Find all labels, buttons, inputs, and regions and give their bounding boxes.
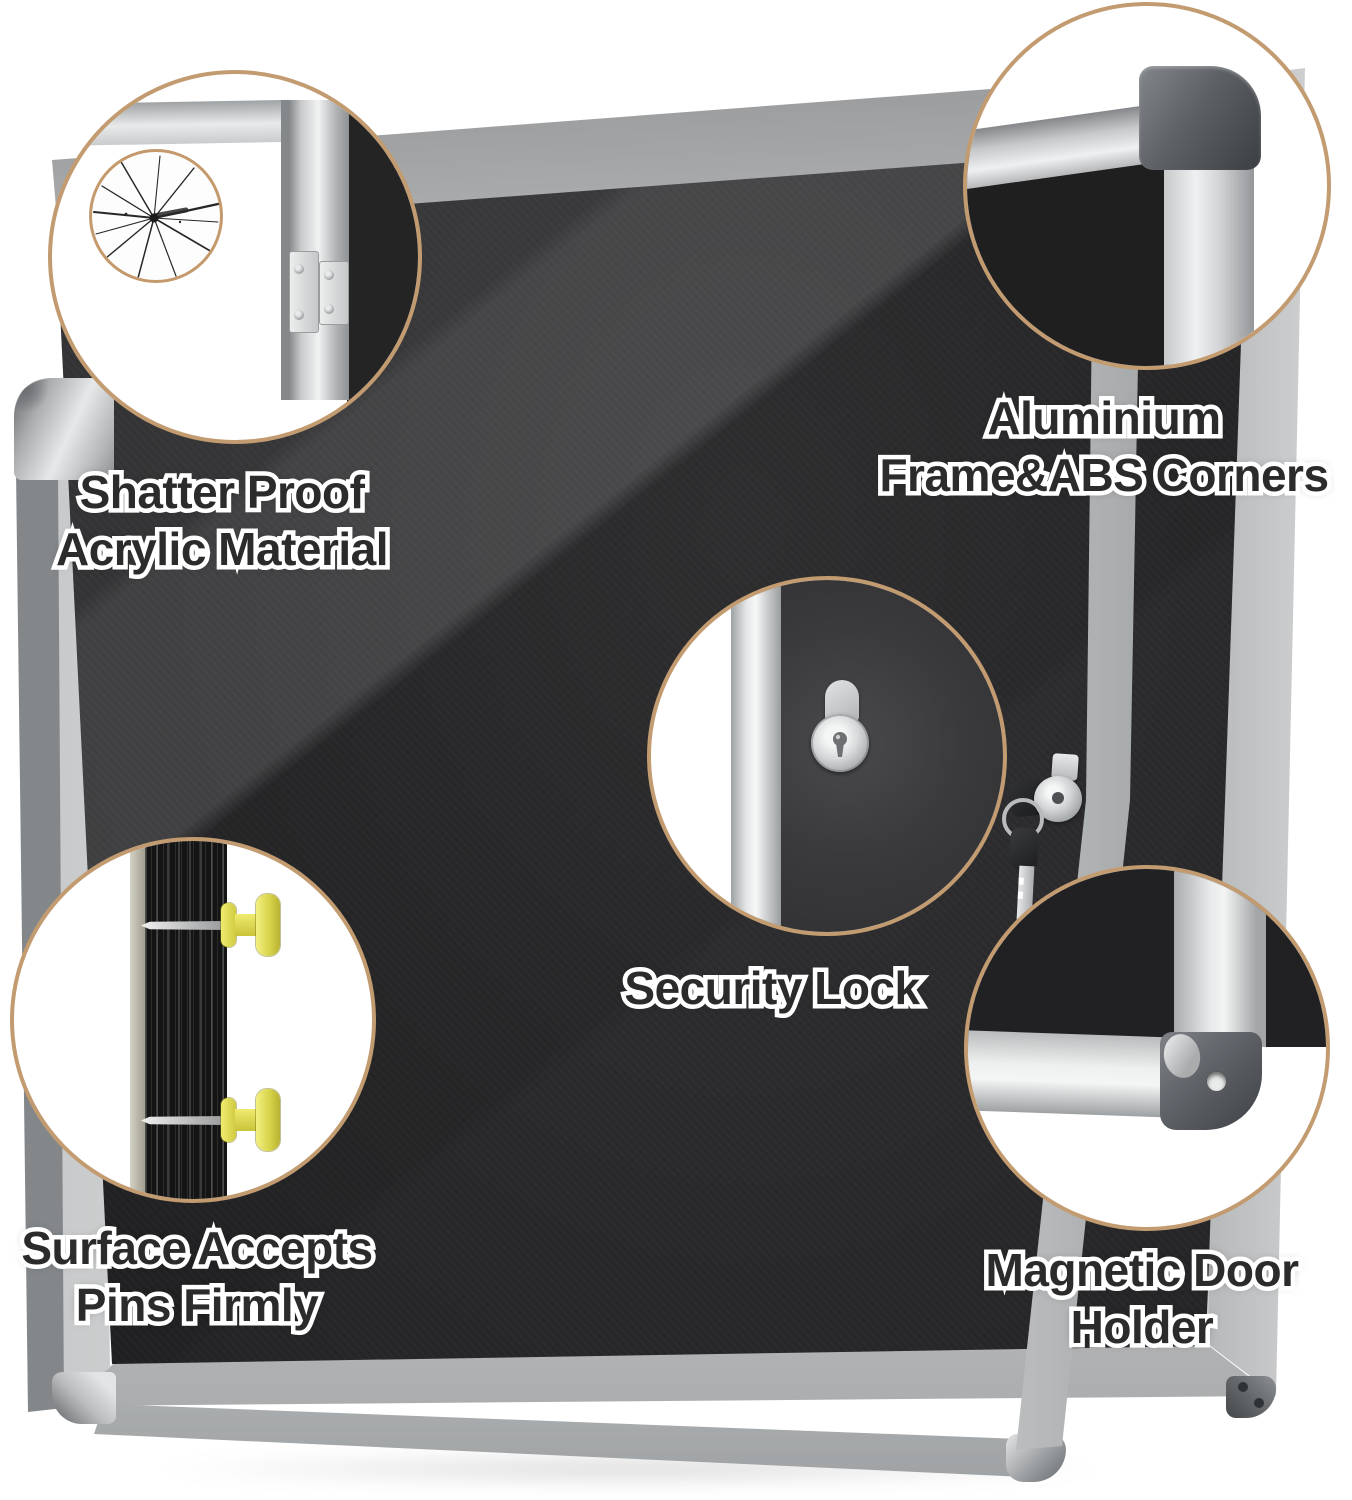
frame-side-detail	[1164, 146, 1254, 370]
cracked-glass-icon	[92, 152, 220, 280]
board-corner-cap-bottom-right	[1226, 1376, 1276, 1418]
product-feature-image: Shatter Proof Shatter Proof Acrylic Mate…	[0, 0, 1352, 1500]
callout-security-lock	[647, 576, 1007, 936]
push-pin-icon	[141, 897, 301, 961]
felt-detail	[347, 74, 422, 444]
push-pin-icon	[141, 1092, 301, 1156]
door-side-frame-detail	[281, 100, 349, 400]
screw-icon	[294, 310, 304, 320]
felt-detail	[968, 869, 1330, 1047]
label-line: Surface Accepts Surface Accepts	[0, 1220, 397, 1277]
pin-base	[221, 903, 236, 947]
label-line: Magnetic Door Magnetic Door	[942, 1242, 1342, 1299]
feature-label-security-lock: Security Lock Security Lock	[572, 960, 972, 1017]
label-text: Frame&ABS Corners	[879, 449, 1328, 501]
corner-cap-hole	[1254, 1398, 1264, 1408]
screw-icon	[324, 304, 334, 314]
pin-neck	[235, 1109, 258, 1131]
callout-aluminium-frame	[963, 2, 1331, 370]
label-line: Holder Holder	[942, 1299, 1342, 1356]
label-text: Surface Accepts	[21, 1222, 372, 1274]
pin-needle	[141, 1116, 227, 1125]
label-line: Pins Firmly Pins Firmly	[0, 1277, 397, 1334]
lock-face-icon	[811, 714, 869, 772]
callout-pin-surface	[10, 837, 376, 1203]
pin-neck	[235, 914, 258, 936]
label-text: Holder	[1071, 1301, 1214, 1353]
keyhole-icon	[811, 714, 869, 772]
felt-detail	[963, 154, 1171, 370]
feature-label-magnetic-holder: Magnetic Door Magnetic Door Holder Holde…	[942, 1242, 1342, 1356]
hinge-icon	[289, 251, 319, 333]
label-text: Shatter Proof	[80, 466, 365, 518]
pin-base	[221, 1098, 236, 1142]
pin-needle	[141, 921, 227, 930]
screw-icon	[294, 264, 304, 274]
hinge-icon	[319, 261, 349, 325]
door-frame-detail	[731, 580, 781, 936]
door-top-frame-detail	[48, 100, 290, 146]
abs-corner-icon	[1139, 66, 1261, 170]
door-side-frame-detail	[1174, 869, 1266, 1047]
callout-magnetic-holder	[964, 865, 1330, 1231]
keyhole-icon	[1052, 792, 1064, 804]
corner-cap-hole	[1238, 1382, 1248, 1392]
callout-shatter-proof	[48, 70, 422, 444]
label-text: Acrylic Material	[56, 523, 388, 575]
label-text: Security Lock	[624, 962, 919, 1014]
label-text: Pins Firmly	[76, 1279, 318, 1331]
board-corner-cap-bottom-left	[52, 1372, 116, 1424]
corner-cap-hole	[1206, 1071, 1227, 1092]
screw-icon	[324, 270, 334, 280]
label-text: Magnetic Door	[986, 1244, 1299, 1296]
feature-label-shatter-proof: Shatter Proof Shatter Proof Acrylic Mate…	[22, 464, 422, 578]
pin-head	[256, 894, 280, 956]
label-line: Frame&ABS Corners Frame&ABS Corners	[854, 447, 1352, 504]
label-line: Shatter Proof Shatter Proof	[22, 464, 422, 521]
hanging-key-head	[1009, 827, 1039, 870]
pin-head	[256, 1089, 280, 1151]
label-text: Aluminium	[987, 392, 1220, 444]
feature-label-pin-surface: Surface Accepts Surface Accepts Pins Fir…	[0, 1220, 397, 1334]
label-line: Acrylic Material Acrylic Material	[22, 521, 422, 578]
label-line: Aluminium Aluminium	[854, 390, 1352, 447]
label-line: Security Lock Security Lock	[572, 960, 972, 1017]
cracked-acrylic-inset	[89, 149, 223, 283]
door-corner-tip	[14, 378, 50, 414]
door-bottom-frame-detail	[964, 1030, 1179, 1117]
feature-label-aluminium-frame: Aluminium Aluminium Frame&ABS Corners Fr…	[854, 390, 1352, 504]
